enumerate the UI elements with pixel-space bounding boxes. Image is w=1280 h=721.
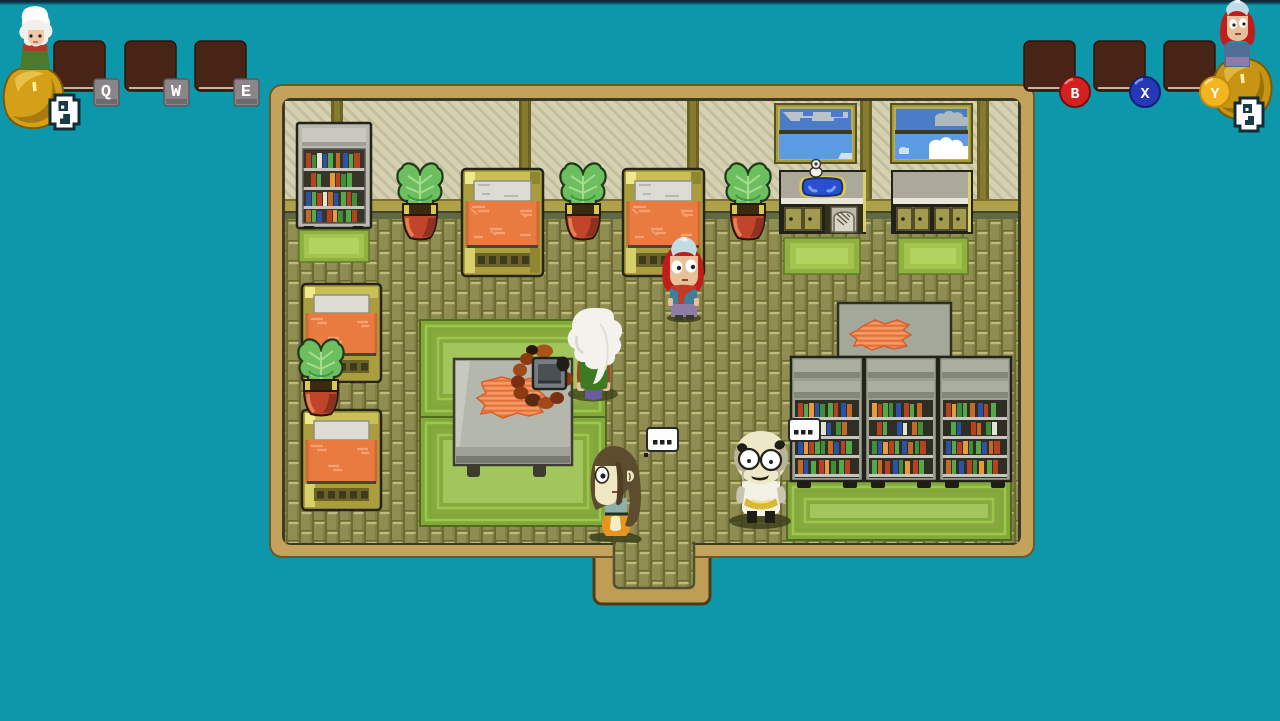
- svg-text:X: X: [1140, 86, 1149, 103]
- svg-text:Y: Y: [1210, 86, 1219, 103]
- svg-text:Q: Q: [101, 83, 111, 102]
- svg-text:E: E: [241, 83, 251, 102]
- svg-text:B: B: [1070, 86, 1079, 103]
- svg-text:W: W: [171, 83, 182, 102]
